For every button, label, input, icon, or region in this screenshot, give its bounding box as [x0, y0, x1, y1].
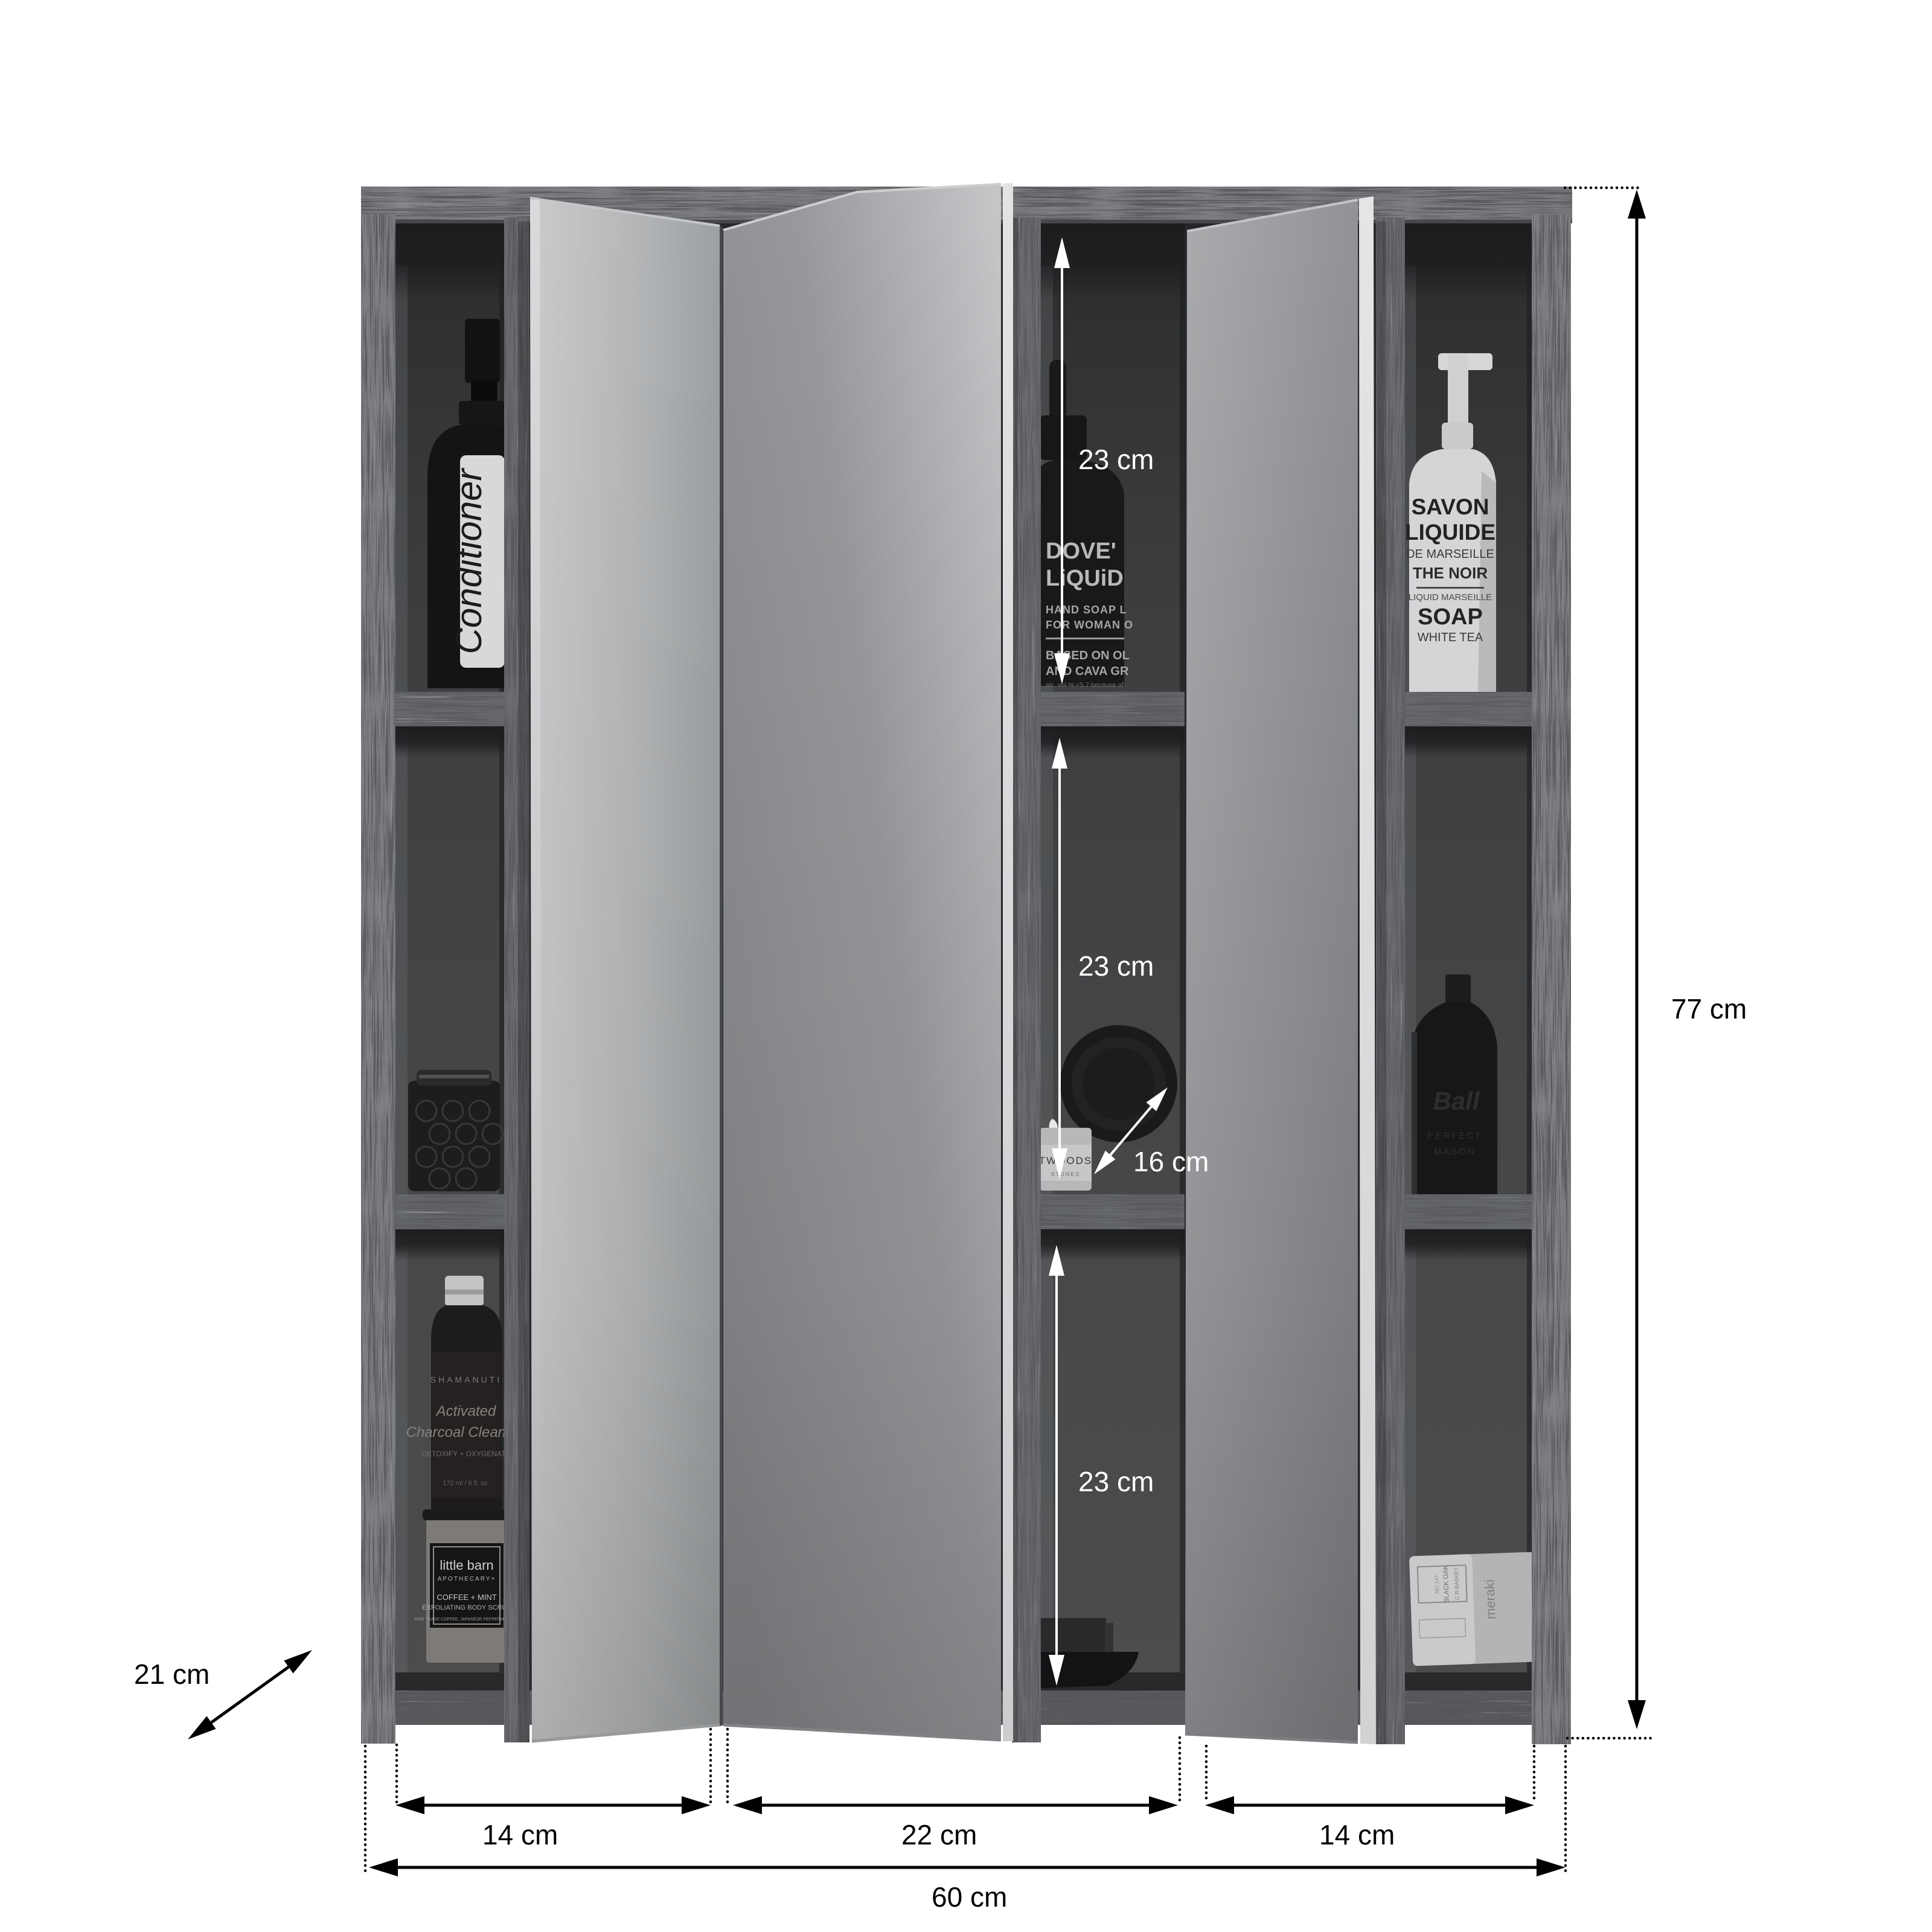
svg-text:23 cm: 23 cm — [1078, 444, 1154, 475]
svg-text:FAIR TRADE COFFEE, JAPANESE PE: FAIR TRADE COFFEE, JAPANESE PEPPERMINT O… — [415, 1617, 519, 1622]
svg-text:THE NOIR: THE NOIR — [1413, 564, 1488, 582]
svg-text:PERFECT: PERFECT — [1427, 1131, 1482, 1141]
svg-text:77 cm: 77 cm — [1671, 993, 1747, 1025]
svg-text:BLACK OAK: BLACK OAK — [1442, 1564, 1451, 1602]
svg-text:SHAMANUTI: SHAMANUTI — [430, 1375, 502, 1384]
svg-text:60 cm: 60 cm — [932, 1881, 1007, 1913]
svg-text:TWOODS: TWOODS — [1039, 1155, 1093, 1166]
svg-text:172 ml / 6 fl. oz.: 172 ml / 6 fl. oz. — [443, 1480, 490, 1487]
svg-text:22 cm: 22 cm — [901, 1819, 977, 1850]
svg-text:WHITE TEA: WHITE TEA — [1418, 631, 1483, 644]
svg-text:APOTHECARY+: APOTHECARY+ — [438, 1576, 496, 1582]
svg-text:SAVON: SAVON — [1412, 494, 1489, 519]
svg-text:FOR WOMAN O: FOR WOMAN O — [1046, 619, 1133, 631]
svg-text:little barn: little barn — [440, 1558, 493, 1573]
svg-text:LiQUiD: LiQUiD — [1046, 566, 1124, 591]
svg-text:LIQUID MARSEILLE: LIQUID MARSEILLE — [1409, 592, 1492, 603]
svg-text:alc. vol % <5.7 because of: alc. vol % <5.7 because of — [1046, 682, 1124, 689]
svg-text:23 cm: 23 cm — [1078, 1466, 1154, 1497]
svg-text:STONES: STONES — [1051, 1171, 1081, 1177]
svg-text:NO 147: NO 147 — [1433, 1575, 1440, 1593]
svg-text:DE MARSEILLE: DE MARSEILLE — [1406, 548, 1494, 561]
svg-text:DOVE': DOVE' — [1046, 539, 1116, 564]
svg-text:Conditioner: Conditioner — [449, 468, 489, 654]
svg-text:C R BASKET: C R BASKET — [1453, 1567, 1460, 1600]
svg-text:COFFEE + MINT: COFFEE + MINT — [437, 1593, 496, 1602]
svg-text:SOAP: SOAP — [1418, 604, 1483, 630]
svg-text:Activated: Activated — [435, 1403, 496, 1419]
svg-text:meraki: meraki — [1482, 1579, 1498, 1620]
svg-text:23 cm: 23 cm — [1078, 950, 1154, 982]
svg-text:EXFOLIATING BODY SCRUB: EXFOLIATING BODY SCRUB — [422, 1604, 511, 1611]
svg-text:Ball: Ball — [1433, 1087, 1480, 1115]
svg-text:MASON: MASON — [1434, 1147, 1476, 1157]
svg-text:HAND SOAP L: HAND SOAP L — [1046, 604, 1127, 616]
svg-text:21 cm: 21 cm — [134, 1659, 210, 1690]
svg-text:14 cm: 14 cm — [482, 1819, 558, 1850]
svg-text:LIQUIDE: LIQUIDE — [1405, 520, 1495, 545]
svg-text:16 cm: 16 cm — [1133, 1146, 1209, 1177]
svg-text:DETOXIFY + OXYGENATE: DETOXIFY + OXYGENATE — [421, 1450, 510, 1458]
svg-text:14 cm: 14 cm — [1319, 1819, 1395, 1850]
